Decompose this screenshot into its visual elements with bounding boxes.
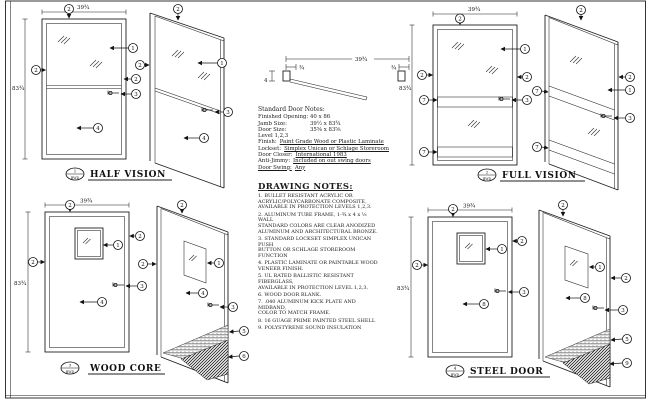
svg-text:3: 3 <box>522 290 526 296</box>
lever-handle-icon <box>108 91 119 95</box>
callout-2: 2 <box>66 201 75 212</box>
callout-2: 2 <box>418 71 433 80</box>
svg-text:BWD: BWD <box>71 176 80 180</box>
callout-5: 5 <box>611 335 632 344</box>
svg-text:2: 2 <box>34 68 38 74</box>
wood-core-ref-bubble: 3 BWD <box>61 362 79 374</box>
head-depth-dimension: 4 <box>264 78 268 84</box>
half-vision-ref-bubble: 1 BWD <box>66 168 84 180</box>
svg-text:1: 1 <box>523 47 527 53</box>
svg-text:4: 4 <box>96 126 100 132</box>
svg-text:2: 2 <box>486 170 489 175</box>
height-dimension: 83¾ <box>14 280 27 287</box>
wood-core-elevation: 39¾ 83¾ 2 2 1 2 3 4 <box>14 198 147 353</box>
callout-3: 3 <box>509 288 529 297</box>
svg-text:BWD: BWD <box>66 370 75 374</box>
width-dimension: 39¾ <box>355 56 368 63</box>
svg-text:2: 2 <box>176 7 180 13</box>
half-vision-elevation: 39¾ 83¾ 2 1 2 2 3 4 <box>12 4 141 159</box>
svg-text:2: 2 <box>451 207 455 213</box>
height-dimension: 83¾ <box>397 285 410 292</box>
half-vision-title: HALF VISION <box>90 170 166 180</box>
svg-text:2: 2 <box>420 73 424 79</box>
callout-1: 1 <box>110 44 138 53</box>
svg-text:2: 2 <box>458 17 462 23</box>
note-row: Door Swing:Any <box>258 165 416 171</box>
callout-2: 2 <box>456 14 465 25</box>
svg-text:1: 1 <box>598 265 602 271</box>
drawing-note-3: 3. STANDARD LOCKSET SIMPLEX UNICAN PUSH … <box>258 237 380 260</box>
svg-text:3: 3 <box>231 305 235 311</box>
svg-text:2: 2 <box>68 203 72 209</box>
callout-4: 4 <box>186 289 208 298</box>
drawing-note-1: 1. BULLET RESISTANT ACRYLIC OR ACRYLIC/P… <box>258 194 380 211</box>
svg-text:4: 4 <box>100 300 104 306</box>
full-vision-ref-bubble: 2 BWD <box>478 169 496 181</box>
callout-4: 4 <box>77 124 103 133</box>
callout-3: 3 <box>512 96 532 105</box>
callout-2: 2 <box>577 6 586 21</box>
callout-2: 2 <box>413 261 428 270</box>
callout-7: 7 <box>420 148 438 157</box>
cad-sheet: 39¾ 83¾ 2 1 2 2 3 4 2 1 2 3 4 1 BWD <box>0 0 650 400</box>
svg-text:2: 2 <box>561 203 565 209</box>
callout-1: 1 <box>608 86 635 95</box>
svg-text:2: 2 <box>180 203 184 209</box>
drawing-note-7: 7. .040 ALUMINUM KICK PLATE AND MIDBAND,… <box>258 300 380 317</box>
callout-1: 1 <box>104 241 123 250</box>
full-vision-perspective: 2 2 1 7 3 7 <box>533 6 635 191</box>
callout-7: 7 <box>420 96 438 105</box>
drawing-note-9: 9. POLYSTYRENE SOUND INSULATION <box>258 326 380 332</box>
jamb-dimension: ¾ <box>391 65 397 72</box>
callout-2: 2 <box>518 73 532 82</box>
callout-1: 1 <box>198 59 227 68</box>
callout-1: 1 <box>208 259 224 268</box>
svg-text:2: 2 <box>624 276 628 282</box>
callout-7: 7 <box>533 143 549 152</box>
callout-2: 2 <box>124 75 141 84</box>
callout-8: 8 <box>463 300 489 309</box>
wood-core-perspective: 2 1 2 4 3 5 6 <box>139 201 249 384</box>
svg-text:3: 3 <box>226 110 230 116</box>
drawing-notes-title: DRAWING NOTES: <box>258 182 380 192</box>
svg-text:7: 7 <box>422 98 426 104</box>
svg-text:2: 2 <box>415 263 419 269</box>
callout-2: 2 <box>178 201 187 214</box>
full-vision-elevation: 39¾ 83¾ 2 1 2 2 7 3 7 <box>399 6 532 165</box>
callout-3: 3 <box>220 303 238 312</box>
svg-text:2: 2 <box>628 75 632 81</box>
svg-text:3: 3 <box>69 363 72 368</box>
callout-3: 3 <box>121 90 141 99</box>
half-vision-perspective: 2 1 2 3 4 <box>136 5 233 189</box>
svg-text:2: 2 <box>520 239 524 245</box>
svg-text:2: 2 <box>138 234 142 240</box>
height-dimension: 83¾ <box>399 85 412 92</box>
callout-2: 2 <box>136 61 150 70</box>
svg-text:3: 3 <box>134 92 138 98</box>
lever-handle-icon <box>208 303 219 307</box>
svg-text:1: 1 <box>74 169 77 174</box>
svg-text:3: 3 <box>525 98 529 104</box>
svg-text:1: 1 <box>628 88 632 94</box>
svg-text:5: 5 <box>625 337 629 343</box>
drawing-note-4: 4. PLASTIC LAMINATE OR PAINTABLE WOOD VE… <box>258 261 380 272</box>
callout-2: 2 <box>513 237 527 246</box>
svg-text:2: 2 <box>579 8 583 14</box>
svg-text:2: 2 <box>31 260 35 266</box>
height-dimension: 83¾ <box>12 85 25 92</box>
callout-3: 3 <box>614 114 635 123</box>
lever-handle-icon <box>495 289 506 293</box>
callout-2: 2 <box>559 201 568 217</box>
lever-handle-icon <box>113 283 124 287</box>
svg-text:4: 4 <box>201 291 205 297</box>
width-dimension: 39¾ <box>468 6 481 13</box>
svg-text:6: 6 <box>242 354 246 360</box>
drawing-note-8: 8. 16 GUAGE PRIME PAINTED STEEL SHELL <box>258 319 380 325</box>
callout-2: 2 <box>32 66 46 75</box>
steel-door-perspective: 2 1 2 8 3 5 9 <box>539 201 632 388</box>
callout-2: 2 <box>449 205 458 217</box>
callout-3: 3 <box>605 306 628 315</box>
steel-door-ref-bubble: 4 BWD <box>446 365 464 377</box>
svg-text:9: 9 <box>625 361 629 367</box>
svg-text:1: 1 <box>220 61 224 67</box>
callout-2: 2 <box>29 258 45 267</box>
width-dimension: 39¾ <box>77 4 90 11</box>
callout-1: 1 <box>486 245 507 254</box>
svg-text:2: 2 <box>134 77 138 83</box>
svg-text:4: 4 <box>202 136 206 142</box>
head-section-detail: 39¾ ¾ ¾ 4 <box>264 56 409 100</box>
jamb-dimension: ¾ <box>299 65 305 72</box>
svg-text:1: 1 <box>116 243 120 249</box>
svg-text:7: 7 <box>422 150 426 156</box>
callout-4: 4 <box>184 134 209 143</box>
callout-2: 2 <box>611 274 631 283</box>
callout-8: 8 <box>566 294 590 303</box>
drawing-note-6: 6. WOOD DOOR BLANK. <box>258 293 380 299</box>
svg-text:3: 3 <box>140 284 144 290</box>
svg-text:4: 4 <box>454 366 457 371</box>
svg-text:3: 3 <box>621 308 625 314</box>
callout-7: 7 <box>533 87 549 96</box>
callout-2: 2 <box>619 73 635 82</box>
callout-2: 2 <box>174 5 183 21</box>
callout-2: 2 <box>130 232 145 241</box>
steel-door-elevation: 39¾ 83¾ 2 2 1 2 3 8 <box>397 203 529 358</box>
callout-5: 5 <box>230 327 249 336</box>
steel-door-title: STEEL DOOR <box>470 367 543 377</box>
svg-text:7: 7 <box>535 89 539 95</box>
callout-2: 2 <box>139 260 157 269</box>
svg-text:BWD: BWD <box>451 373 460 377</box>
callout-1: 1 <box>501 45 530 54</box>
callout-6: 6 <box>229 352 249 361</box>
callout-9: 9 <box>610 359 632 368</box>
callout-2: 2 <box>65 5 74 19</box>
width-dimension: 39¾ <box>80 198 93 205</box>
svg-text:1: 1 <box>500 247 504 253</box>
callout-4: 4 <box>80 298 107 307</box>
standard-notes-title: Standard Door Notes: <box>258 107 416 113</box>
width-dimension: 39¾ <box>463 203 476 210</box>
drawing-notes: DRAWING NOTES: 1. BULLET RESISTANT ACRYL… <box>258 182 380 333</box>
drawing-note-5: 5. UL RATED BALLISTIC RESISTANT FIBERGLA… <box>258 274 380 291</box>
svg-text:1: 1 <box>217 261 221 267</box>
svg-text:8: 8 <box>583 296 587 302</box>
callout-1: 1 <box>590 263 605 272</box>
svg-text:2: 2 <box>67 7 71 13</box>
drawing-note-2: 2. ALUMINUM TUBE FRAME, 1-¾ x 4 x ⅛ WALL… <box>258 213 380 236</box>
lever-handle-icon <box>593 306 604 310</box>
svg-text:BWD: BWD <box>483 177 492 181</box>
svg-text:3: 3 <box>628 116 632 122</box>
svg-text:2: 2 <box>138 63 142 69</box>
svg-text:2: 2 <box>141 262 145 268</box>
standard-door-notes: Standard Door Notes: Finished Opening:40… <box>258 107 416 171</box>
svg-text:5: 5 <box>242 329 246 335</box>
svg-text:2: 2 <box>525 75 529 81</box>
svg-text:7: 7 <box>535 145 539 151</box>
svg-text:1: 1 <box>131 46 135 52</box>
wood-core-title: WOOD CORE <box>89 364 161 374</box>
full-vision-title: FULL VISION <box>502 171 577 181</box>
svg-text:8: 8 <box>482 302 486 308</box>
